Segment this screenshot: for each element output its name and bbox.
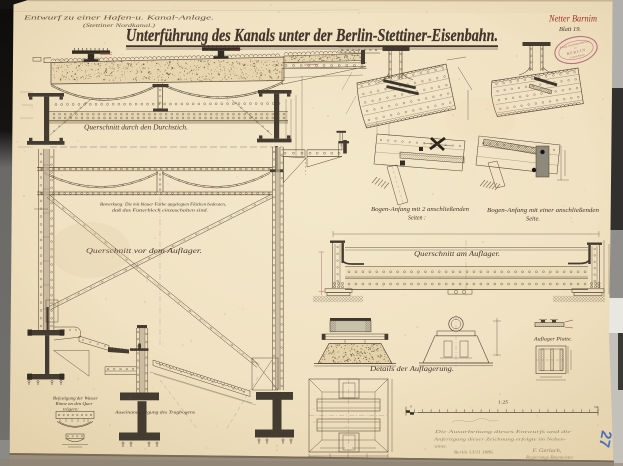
svg-text:Seite.: Seite.: [526, 216, 540, 223]
svg-text:trägern:: trägern:: [63, 406, 80, 411]
svg-text:Unterführung des Kanals unter: Unterführung des Kanals unter der Berlin…: [126, 25, 498, 45]
svg-text:Berlin 13/11 1886.: Berlin 13/11 1886.: [454, 450, 494, 455]
svg-text:F. Gerlach,: F. Gerlach,: [531, 448, 561, 454]
svg-text:Querschnitt durch den Durchsti: Querschnitt durch den Durchstich.: [84, 124, 188, 132]
svg-text:Auseinanderlegung des Tragboge: Auseinanderlegung des Tragbogens: [114, 410, 196, 415]
svg-text:Seiten :: Seiten :: [408, 215, 426, 222]
svg-text:Entwurf zu einer Hafen-u. Kana: Entwurf zu einer Hafen-u. Kanal-Anlage.: [22, 15, 215, 22]
svg-text:Bogen-Anfang mit einer anschli: Bogen-Anfang mit einer anschließenden: [487, 207, 599, 214]
svg-text:Auflager Platte.: Auflager Platte.: [533, 338, 572, 343]
svg-text:1:25: 1:25: [498, 401, 508, 405]
svg-text:Die Ausarbeitung dieses Entwur: Die Ausarbeitung dieses Entwurfs und die: [433, 429, 571, 434]
svg-text:Rinne an den Quer: Rinne an den Quer: [54, 401, 93, 406]
svg-text:amte.: amte.: [435, 444, 448, 449]
svg-text:Anfertigung dieser Zeichnung e: Anfertigung dieser Zeichnung erfolgte im…: [433, 437, 567, 442]
svg-text:Blatt 19.: Blatt 19.: [559, 26, 581, 33]
svg-text:Netter Barnim: Netter Barnim: [548, 14, 597, 24]
svg-text:Bogen-Anfang mit 2 anschließen: Bogen-Anfang mit 2 anschließenden: [371, 206, 469, 213]
svg-text:Befestigung der Wasser: Befestigung der Wasser: [53, 396, 98, 401]
svg-text:Querschnitt am Auflager.: Querschnitt am Auflager.: [414, 249, 500, 258]
svg-text:Regierungs-Baumeister.: Regierungs-Baumeister.: [525, 455, 574, 460]
svg-text:27: 27: [595, 429, 615, 448]
